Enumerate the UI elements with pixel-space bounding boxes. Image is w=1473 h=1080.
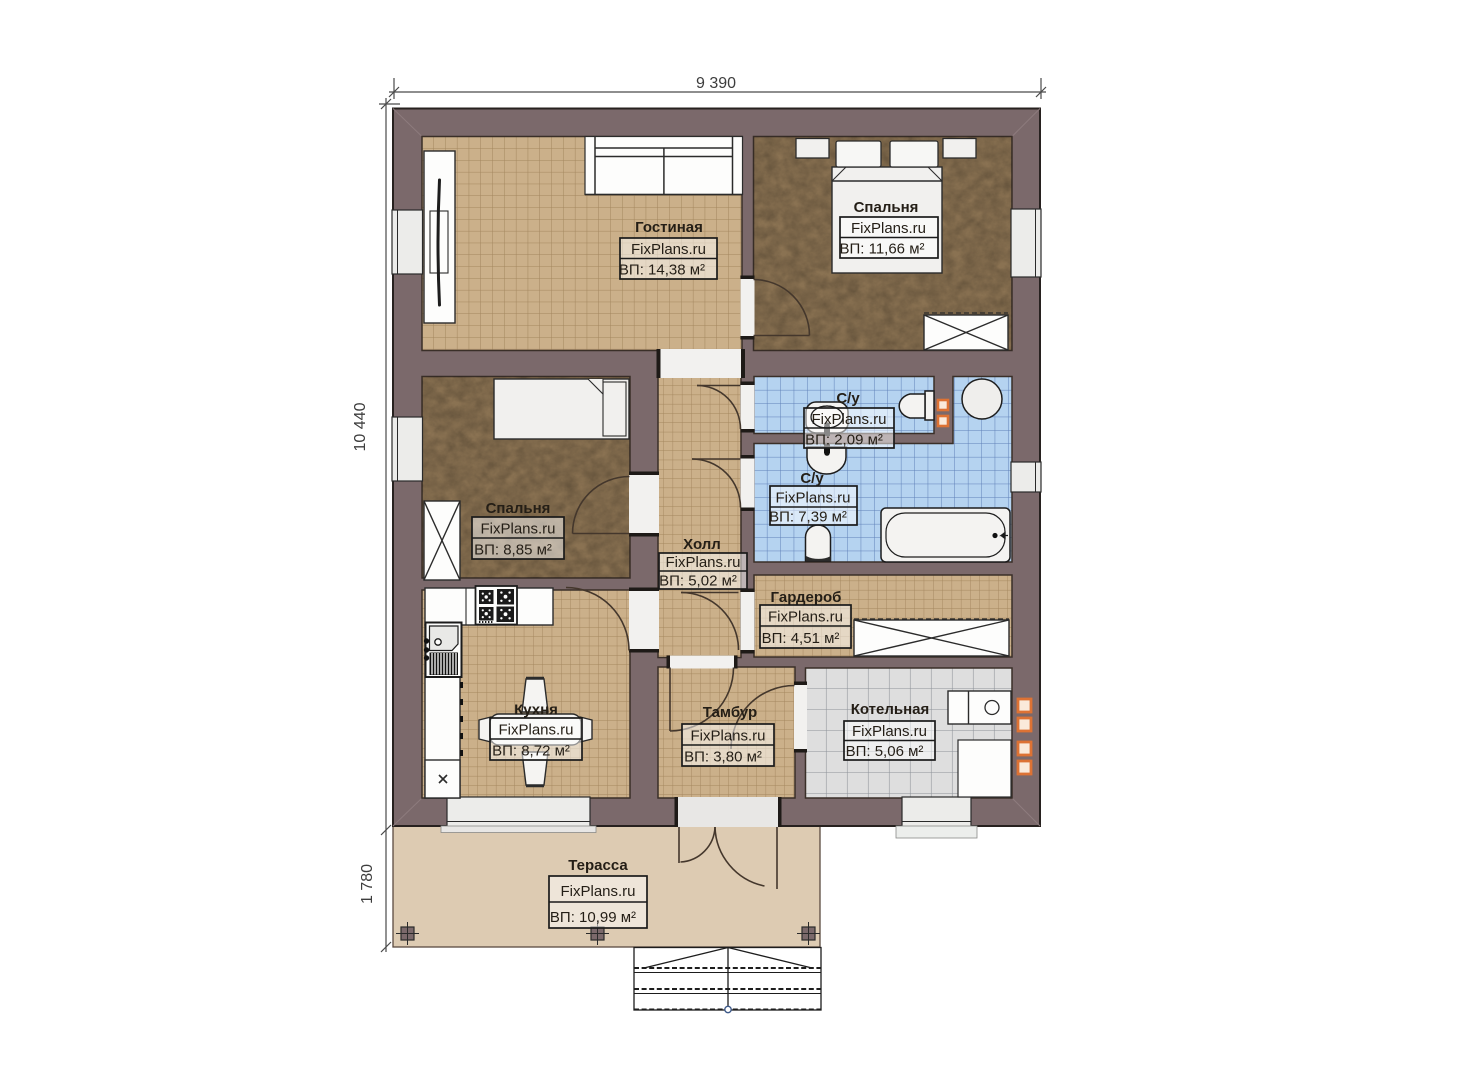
svg-text:ВП: 2,09 м²: ВП: 2,09 м²	[805, 432, 883, 449]
svg-text:FixPlans.ru: FixPlans.ru	[852, 723, 927, 740]
svg-text:ВП: 3,80 м²: ВП: 3,80 м²	[684, 749, 762, 766]
svg-text:ВП: 7,39 м²: ВП: 7,39 м²	[769, 509, 847, 526]
svg-text:ВП: 8,85 м²: ВП: 8,85 м²	[474, 542, 552, 559]
svg-text:С/у: С/у	[836, 390, 860, 407]
svg-text:ВП: 14,38 м²: ВП: 14,38 м²	[619, 262, 705, 279]
svg-text:ВП: 5,02 м²: ВП: 5,02 м²	[659, 573, 737, 590]
svg-text:1 780: 1 780	[359, 864, 376, 904]
svg-text:Терасса: Терасса	[568, 857, 628, 874]
svg-text:ВП: 11,66 м²: ВП: 11,66 м²	[839, 241, 924, 258]
svg-text:10 440: 10 440	[352, 402, 369, 451]
svg-text:FixPlans.ru: FixPlans.ru	[480, 521, 555, 538]
svg-text:FixPlans.ru: FixPlans.ru	[631, 241, 706, 258]
svg-text:Спальня: Спальня	[486, 500, 551, 517]
svg-text:9 390: 9 390	[696, 75, 736, 92]
svg-text:FixPlans.ru: FixPlans.ru	[665, 554, 740, 571]
svg-text:ВП: 8,72 м²: ВП: 8,72 м²	[492, 743, 570, 760]
svg-text:Гостиная: Гостиная	[635, 219, 703, 236]
svg-text:FixPlans.ru: FixPlans.ru	[775, 490, 850, 507]
svg-text:Холл: Холл	[683, 536, 721, 553]
svg-text:ВП: 5,06 м²: ВП: 5,06 м²	[846, 743, 924, 760]
svg-text:ВП: 4,51 м²: ВП: 4,51 м²	[762, 630, 840, 647]
svg-text:FixPlans.ru: FixPlans.ru	[768, 609, 843, 626]
svg-text:FixPlans.ru: FixPlans.ru	[560, 883, 635, 900]
svg-text:FixPlans.ru: FixPlans.ru	[811, 411, 886, 428]
svg-text:FixPlans.ru: FixPlans.ru	[851, 220, 926, 237]
svg-text:ВП: 10,99 м²: ВП: 10,99 м²	[550, 909, 636, 926]
svg-text:FixPlans.ru: FixPlans.ru	[690, 728, 765, 745]
svg-text:С/у: С/у	[800, 470, 824, 487]
svg-text:Тамбур: Тамбур	[703, 704, 757, 721]
svg-text:Котельная: Котельная	[851, 701, 930, 718]
svg-text:FixPlans.ru: FixPlans.ru	[498, 722, 573, 739]
svg-text:Гардероб: Гардероб	[771, 589, 842, 606]
svg-text:Кухня: Кухня	[514, 702, 558, 719]
svg-text:Спальня: Спальня	[854, 199, 919, 216]
